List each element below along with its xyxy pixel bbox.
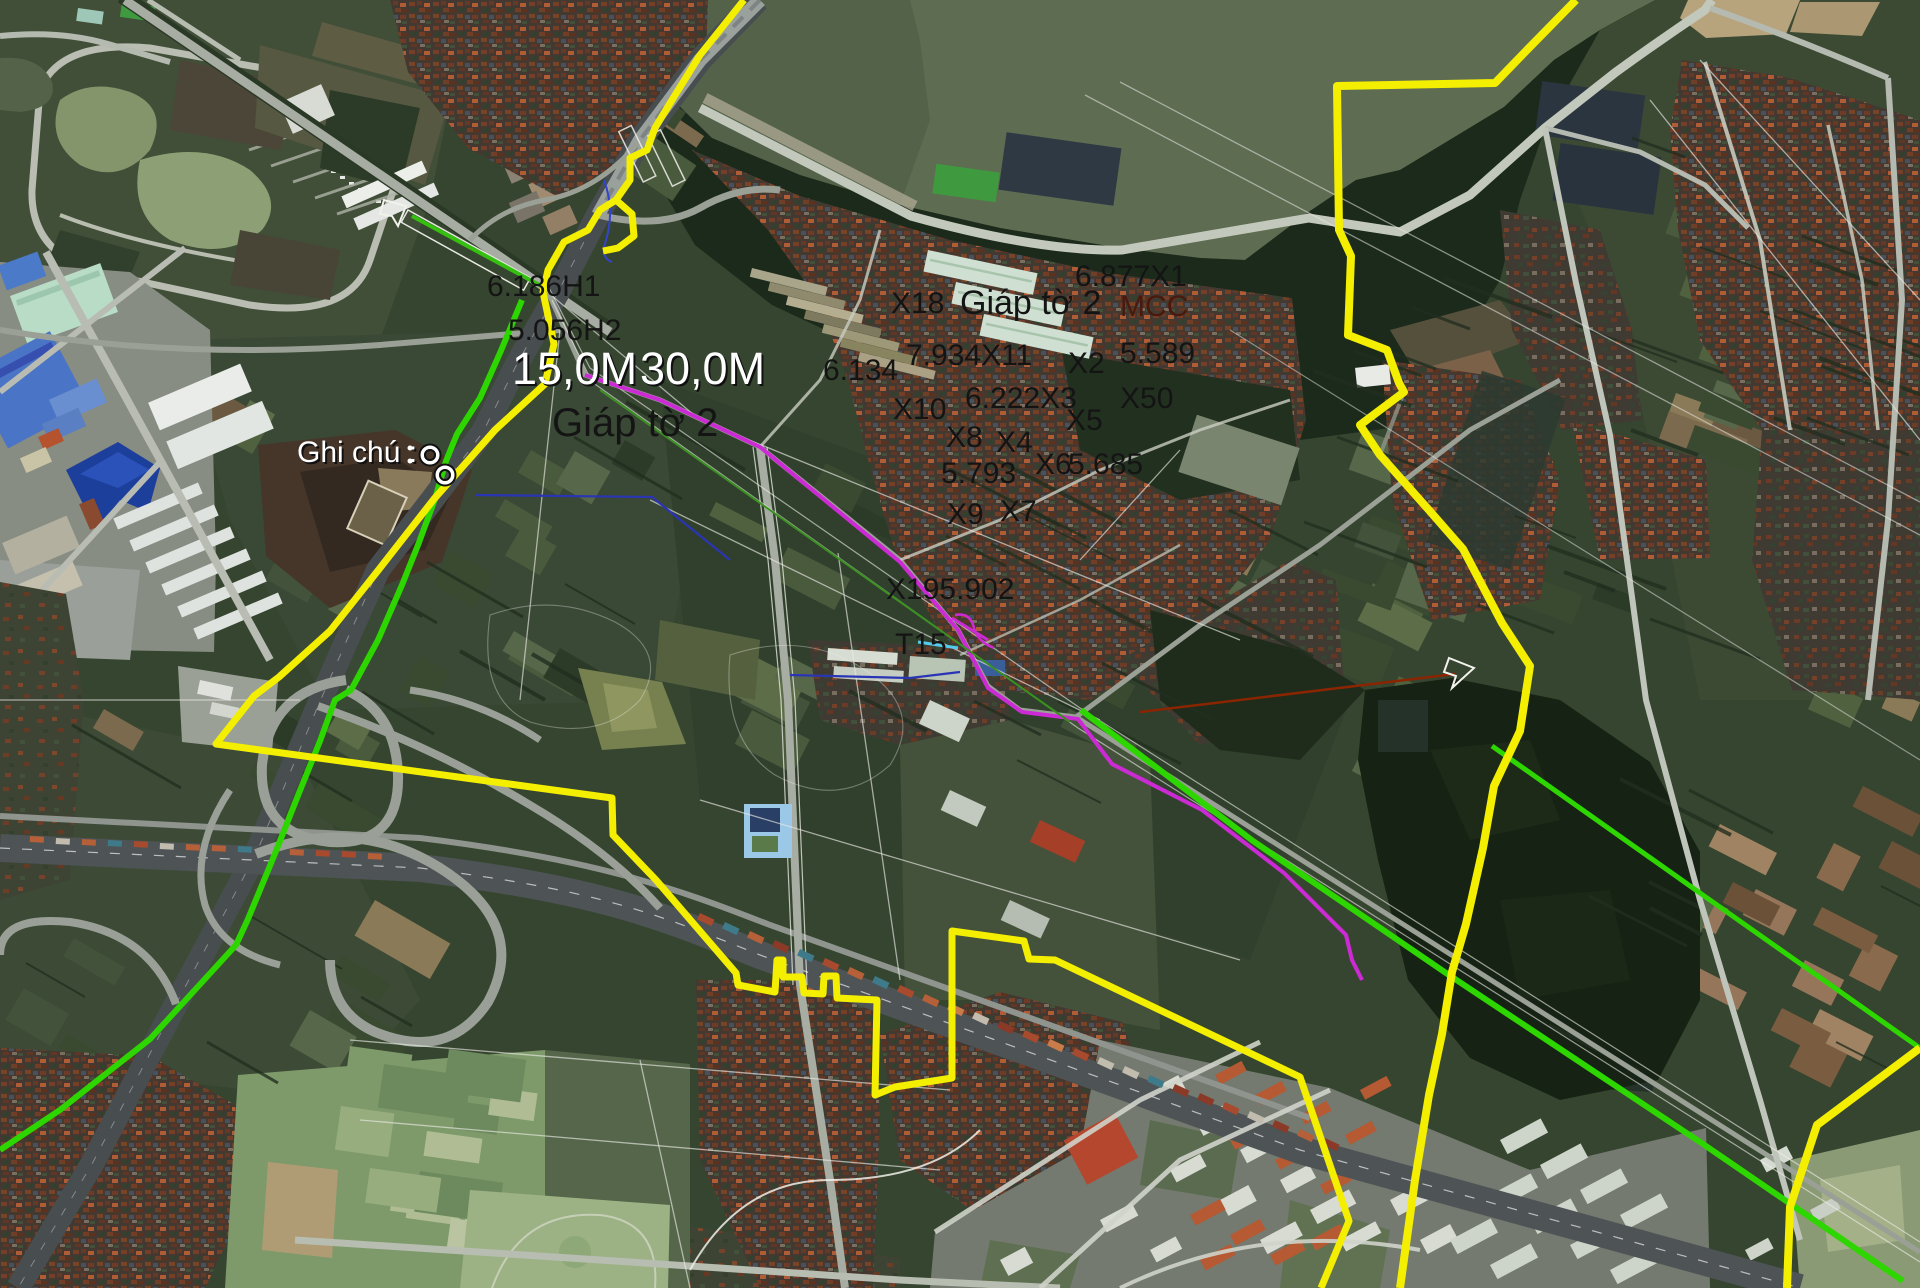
svg-text:6.134: 6.134 <box>823 354 898 387</box>
svg-text:Ghi chú :: Ghi chú : <box>297 436 417 469</box>
svg-text:5.589: 5.589 <box>1120 337 1195 370</box>
svg-text:Giáp tờ 2: Giáp tờ 2 <box>960 284 1101 322</box>
svg-text:5.793: 5.793 <box>941 457 1016 490</box>
svg-text:X9: X9 <box>947 498 984 531</box>
svg-text:X8: X8 <box>946 421 983 454</box>
svg-text:Giáp tờ 2: Giáp tờ 2 <box>552 401 718 445</box>
svg-text:X5: X5 <box>1066 404 1103 437</box>
svg-text:30,0M: 30,0M <box>640 343 765 394</box>
svg-text:X6: X6 <box>1035 448 1072 481</box>
svg-text:X195.902: X195.902 <box>886 573 1014 606</box>
svg-text:X2: X2 <box>1068 347 1105 380</box>
svg-text:MCC: MCC <box>1120 290 1188 323</box>
svg-text:5.685: 5.685 <box>1068 448 1143 481</box>
svg-text:T15: T15 <box>895 628 947 661</box>
svg-text:X4: X4 <box>996 426 1033 459</box>
svg-text:7.934X11: 7.934X11 <box>906 339 1032 372</box>
svg-text:X7: X7 <box>1000 495 1037 528</box>
svg-text:6.222X3: 6.222X3 <box>965 382 1077 415</box>
svg-text:X50: X50 <box>1120 382 1173 415</box>
svg-text:15,0M: 15,0M <box>512 343 637 394</box>
svg-text:X18: X18 <box>891 287 944 320</box>
svg-text:6.186H1: 6.186H1 <box>487 270 600 303</box>
svg-text:X10: X10 <box>893 393 946 426</box>
